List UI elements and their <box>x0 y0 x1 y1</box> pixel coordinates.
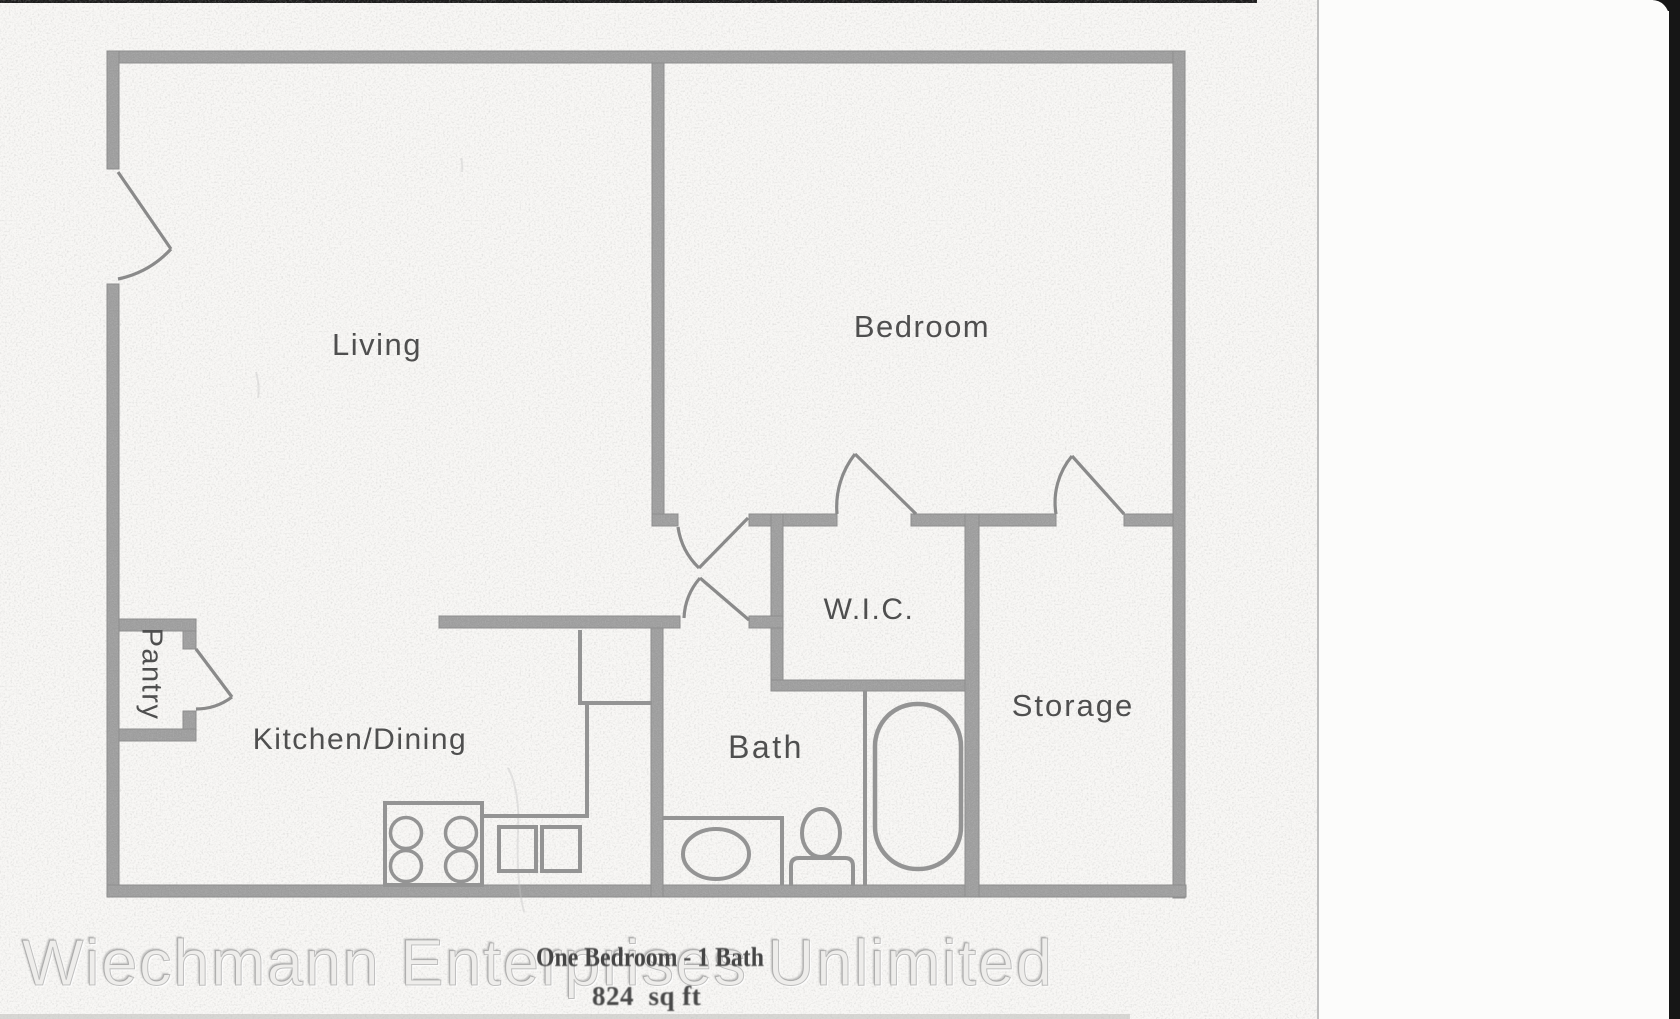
svg-text:Kitchen/Dining: Kitchen/Dining <box>253 723 467 756</box>
svg-text:Pantry: Pantry <box>135 628 167 721</box>
svg-text:Storage: Storage <box>1012 688 1135 723</box>
svg-text:Bath: Bath <box>728 729 804 765</box>
svg-text:Living: Living <box>332 327 422 362</box>
svg-text:W.I.C.: W.I.C. <box>824 593 915 626</box>
svg-text:Bedroom: Bedroom <box>854 309 990 344</box>
